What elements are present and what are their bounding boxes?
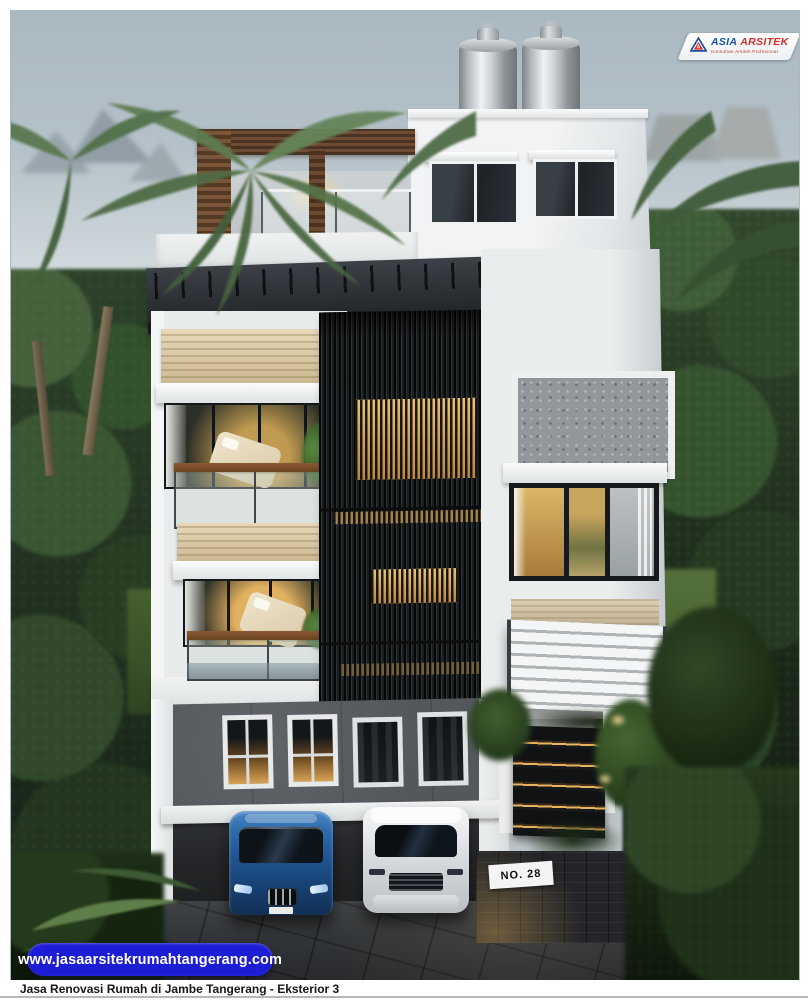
tower-ledge (503, 463, 667, 483)
louver-divider (319, 639, 495, 645)
tank-cap (477, 28, 499, 40)
headlight (234, 884, 253, 894)
lit-window-behind-louvers (355, 398, 477, 480)
distant-roof (69, 109, 153, 163)
house-number-text: NO. 28 (500, 868, 542, 883)
lit-window-behind-louvers (371, 568, 457, 604)
garden-light (609, 713, 627, 727)
house-number-sign: NO. 28 (488, 861, 554, 889)
pillow (252, 597, 270, 612)
pillow (221, 436, 239, 450)
penthouse-parapet-cap (408, 109, 648, 118)
car-grille (389, 873, 443, 891)
windshield (375, 825, 457, 857)
garden-light (597, 773, 613, 785)
headlight (369, 869, 385, 875)
headlight (310, 884, 329, 894)
blue-suv (229, 811, 333, 915)
lit-louver-gap (333, 510, 491, 525)
skylight-dark (352, 717, 403, 788)
entrance-plant (469, 689, 531, 761)
tank-cap (540, 26, 562, 38)
website-url-pill: www.jasaarsitekrumahtangerang.com (27, 943, 273, 976)
headlight (447, 869, 463, 875)
car-bumper (373, 895, 459, 908)
asia-arsitek-logo: A ASIAARSITEK Konsultan Arsitek Profesio… (683, 33, 795, 60)
skylight-dark (417, 711, 469, 786)
distant-roof (643, 115, 721, 161)
website-url-text: www.jasaarsitekrumahtangerang.com (18, 952, 282, 968)
triangle-a-logo-icon: A (690, 37, 707, 52)
lit-louver-gap (339, 661, 497, 676)
window-pane-lit (514, 488, 564, 576)
logo-text-secondary: ARSITEK (740, 36, 788, 48)
logo-wordmark: ASIAARSITEK (711, 37, 788, 48)
concrete-deck (160, 697, 514, 812)
penthouse-window (533, 159, 617, 219)
skylight-lit (287, 714, 338, 787)
window-pane-curtain (610, 488, 654, 576)
foreground-bush (647, 607, 777, 777)
car-grille (267, 888, 297, 906)
skylight-lit (222, 714, 274, 789)
tower-bedroom-window (509, 483, 659, 581)
wood-panel-upper (161, 329, 329, 385)
distant-roof (709, 107, 781, 159)
car-roof (371, 807, 461, 823)
white-suv (363, 807, 469, 913)
license-plate (269, 907, 293, 914)
foreground-foliage-right (625, 767, 800, 982)
caption-text: Jasa Renovasi Rumah di Jambe Tangerang -… (20, 982, 339, 996)
divider-line (0, 996, 808, 998)
logo-text-primary: ASIA (711, 36, 737, 48)
white-louvered-awning (507, 620, 667, 715)
windshield (239, 827, 323, 863)
car-roof-glint (245, 814, 317, 823)
black-louver-screen (319, 309, 495, 706)
penthouse-window (429, 161, 519, 225)
architectural-render-photo: NO. 28 (10, 10, 800, 982)
svg-text:A: A (697, 45, 701, 51)
window-pane-lit (569, 488, 605, 576)
logo-tagline: Konsultan Arsitek Profesional (711, 50, 788, 55)
wood-panel-lower (177, 523, 339, 563)
